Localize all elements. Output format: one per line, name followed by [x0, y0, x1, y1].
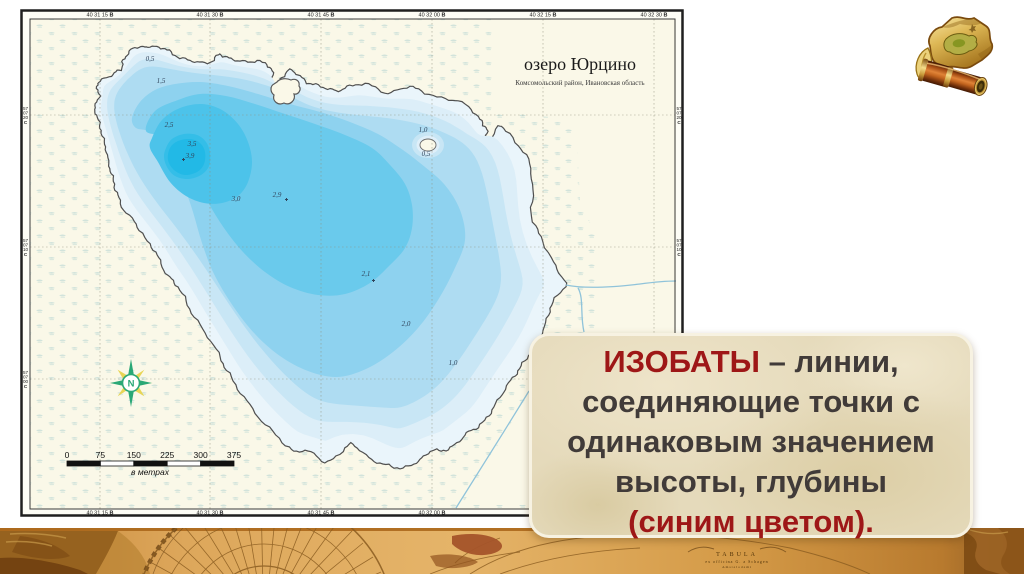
svg-text:0,5: 0,5 — [422, 150, 431, 158]
svg-text:ex officina G. a Schagen: ex officina G. a Schagen — [705, 559, 768, 564]
svg-text:40 31 30 В: 40 31 30 В — [197, 13, 224, 19]
svg-text:0: 0 — [65, 450, 70, 460]
svg-text:1,0: 1,0 — [419, 126, 428, 134]
svg-text:40 31 30 В: 40 31 30 В — [197, 511, 224, 517]
svg-text:225: 225 — [160, 450, 174, 460]
svg-text:375: 375 — [227, 450, 241, 460]
svg-text:150: 150 — [127, 450, 141, 460]
svg-text:300: 300 — [194, 450, 208, 460]
svg-text:3,0: 3,0 — [231, 195, 241, 203]
svg-text:Amstelodami: Amstelodami — [722, 565, 752, 569]
svg-text:40 32 30 В: 40 32 30 В — [641, 13, 668, 19]
svg-text:75: 75 — [96, 450, 106, 460]
svg-text:в метрах: в метрах — [131, 467, 170, 477]
svg-text:40 31 45 В: 40 31 45 В — [308, 13, 335, 19]
svg-text:0,5: 0,5 — [146, 55, 155, 63]
svg-text:40 32 15 В: 40 32 15 В — [530, 13, 557, 19]
svg-text:3,5: 3,5 — [187, 140, 197, 148]
svg-text:2,5: 2,5 — [165, 121, 174, 129]
svg-text:2,9: 2,9 — [273, 191, 282, 199]
svg-text:2,1: 2,1 — [362, 270, 371, 278]
svg-text:озеро Юрцино: озеро Юрцино — [524, 54, 636, 74]
svg-text:1,0: 1,0 — [449, 359, 458, 367]
svg-text:40 31 15 В: 40 31 15 В — [87, 13, 114, 19]
svg-text:40 31 15 В: 40 31 15 В — [87, 511, 114, 517]
svg-text:1,5: 1,5 — [157, 77, 166, 85]
svg-text:Комсомольский район, Ивановска: Комсомольский район, Ивановская область — [515, 79, 644, 87]
svg-text:40 31 45 В: 40 31 45 В — [308, 511, 335, 517]
svg-text:TABULA: TABULA — [716, 552, 758, 558]
svg-text:3,9: 3,9 — [185, 152, 195, 160]
svg-text:40 32 00 В: 40 32 00 В — [419, 13, 446, 19]
svg-text:N: N — [128, 378, 135, 389]
svg-text:2,0: 2,0 — [402, 320, 411, 328]
svg-text:40 32 00 В: 40 32 00 В — [419, 511, 446, 517]
